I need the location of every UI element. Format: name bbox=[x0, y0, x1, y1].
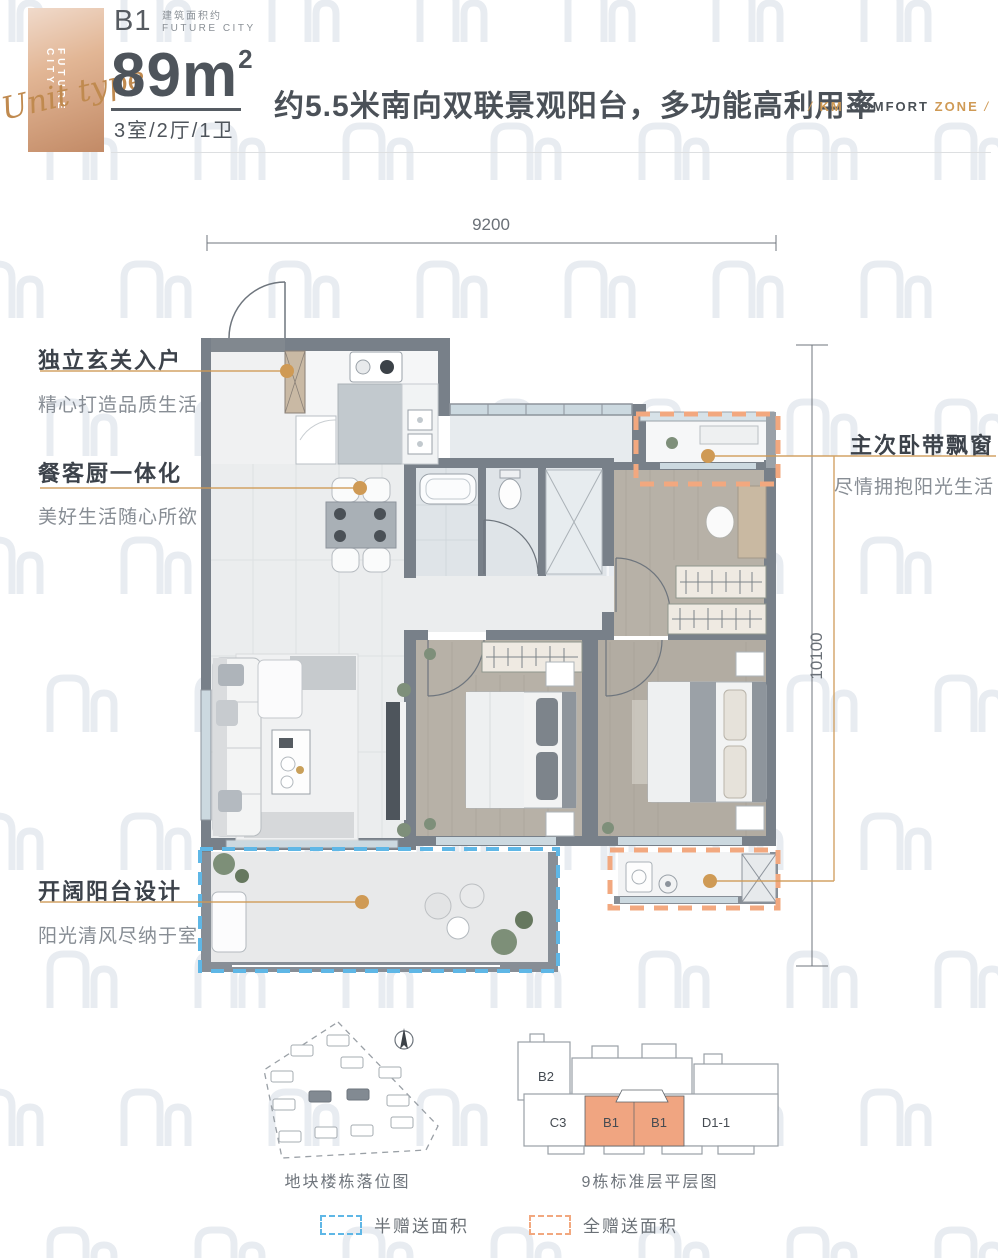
half-gift-label: 半赠送面积 bbox=[374, 1212, 469, 1237]
callout-entry-subtitle: 精心打造品质生活 bbox=[38, 390, 198, 417]
legend: 半赠送面积 全赠送面积 bbox=[0, 1212, 998, 1237]
poster-page: { "header": { "ribbon": {"script": "Unit… bbox=[0, 0, 998, 1258]
full-gift-swatch-icon bbox=[529, 1215, 571, 1235]
unit-label-c3: C3 bbox=[550, 1115, 567, 1130]
brand-slash-left: / bbox=[808, 99, 814, 114]
dimension-height-label: 10100 bbox=[807, 632, 826, 679]
legend-item-full-gift: 全赠送面积 bbox=[529, 1212, 678, 1237]
callout-balcony-title: 开阔阳台设计 bbox=[38, 874, 198, 906]
headline: 约5.5米南向双联景观阳台，多功能高利用率 bbox=[274, 81, 877, 125]
area-exponent: 2 bbox=[238, 44, 253, 74]
area-number: 89m bbox=[111, 41, 238, 110]
unit-code: B1 bbox=[114, 5, 151, 38]
brand-tagline: / KM COMFORT ZONE / bbox=[808, 99, 990, 114]
callout-baywindow: 主次卧带飘窗 尽情拥抱阳光生活 bbox=[834, 428, 994, 499]
callout-dining-title: 餐客厨一体化 bbox=[38, 456, 198, 488]
callout-balcony: 开阔阳台设计 阳光清风尽纳于室 bbox=[38, 874, 198, 948]
unit-label-d1-1: D1-1 bbox=[702, 1115, 730, 1130]
brand-comfort: COMFORT bbox=[849, 99, 929, 114]
callout-entry-title: 独立玄关入户 bbox=[38, 343, 198, 375]
header-divider bbox=[111, 152, 991, 153]
badge-subtitle-en: FUTURE CITY bbox=[162, 24, 256, 34]
unit-area: 89m2 bbox=[111, 40, 254, 111]
site-plan-caption: 地块楼栋落位图 bbox=[240, 1168, 455, 1192]
area-underline bbox=[111, 108, 241, 111]
floor-strip-diagram: B2 C3 B1 B1 D1-1 bbox=[518, 1034, 778, 1154]
unit-badge-subtitle: 建筑面积约 FUTURE CITY bbox=[162, 12, 256, 34]
callout-dining-subtitle: 美好生活随心所欲 bbox=[38, 502, 198, 529]
floor-plan bbox=[200, 282, 778, 972]
brand-km: KM bbox=[819, 99, 843, 114]
half-gift-swatch-icon bbox=[320, 1215, 362, 1235]
unit-label-b1-right: B1 bbox=[651, 1115, 667, 1130]
unit-layout: 3室/2厅/1卫 bbox=[114, 114, 234, 143]
full-gift-label: 全赠送面积 bbox=[583, 1212, 678, 1237]
callout-baywindow-subtitle: 尽情拥抱阳光生活 bbox=[834, 472, 994, 499]
callout-entry: 独立玄关入户 精心打造品质生活 bbox=[38, 343, 198, 417]
unit-label-b2: B2 bbox=[538, 1069, 554, 1084]
floor-strip-caption: 9栋标准层平层图 bbox=[520, 1168, 780, 1192]
dimension-width-label: 9200 bbox=[472, 215, 510, 234]
callout-dining: 餐客厨一体化 美好生活随心所欲 bbox=[38, 456, 198, 529]
brand-slash-right: / bbox=[984, 99, 990, 114]
highlighted-b1-units bbox=[585, 1096, 684, 1146]
callout-baywindow-title: 主次卧带飘窗 bbox=[834, 428, 994, 460]
badge-subtitle-cn: 建筑面积约 bbox=[162, 12, 256, 22]
unit-label-b1-left: B1 bbox=[603, 1115, 619, 1130]
brand-zone: ZONE bbox=[935, 99, 979, 114]
callout-balcony-subtitle: 阳光清风尽纳于室 bbox=[38, 921, 198, 948]
floorplan-svg: 9200 10100 bbox=[0, 0, 998, 1258]
legend-item-half-gift: 半赠送面积 bbox=[320, 1212, 469, 1237]
entry-door bbox=[229, 282, 285, 338]
